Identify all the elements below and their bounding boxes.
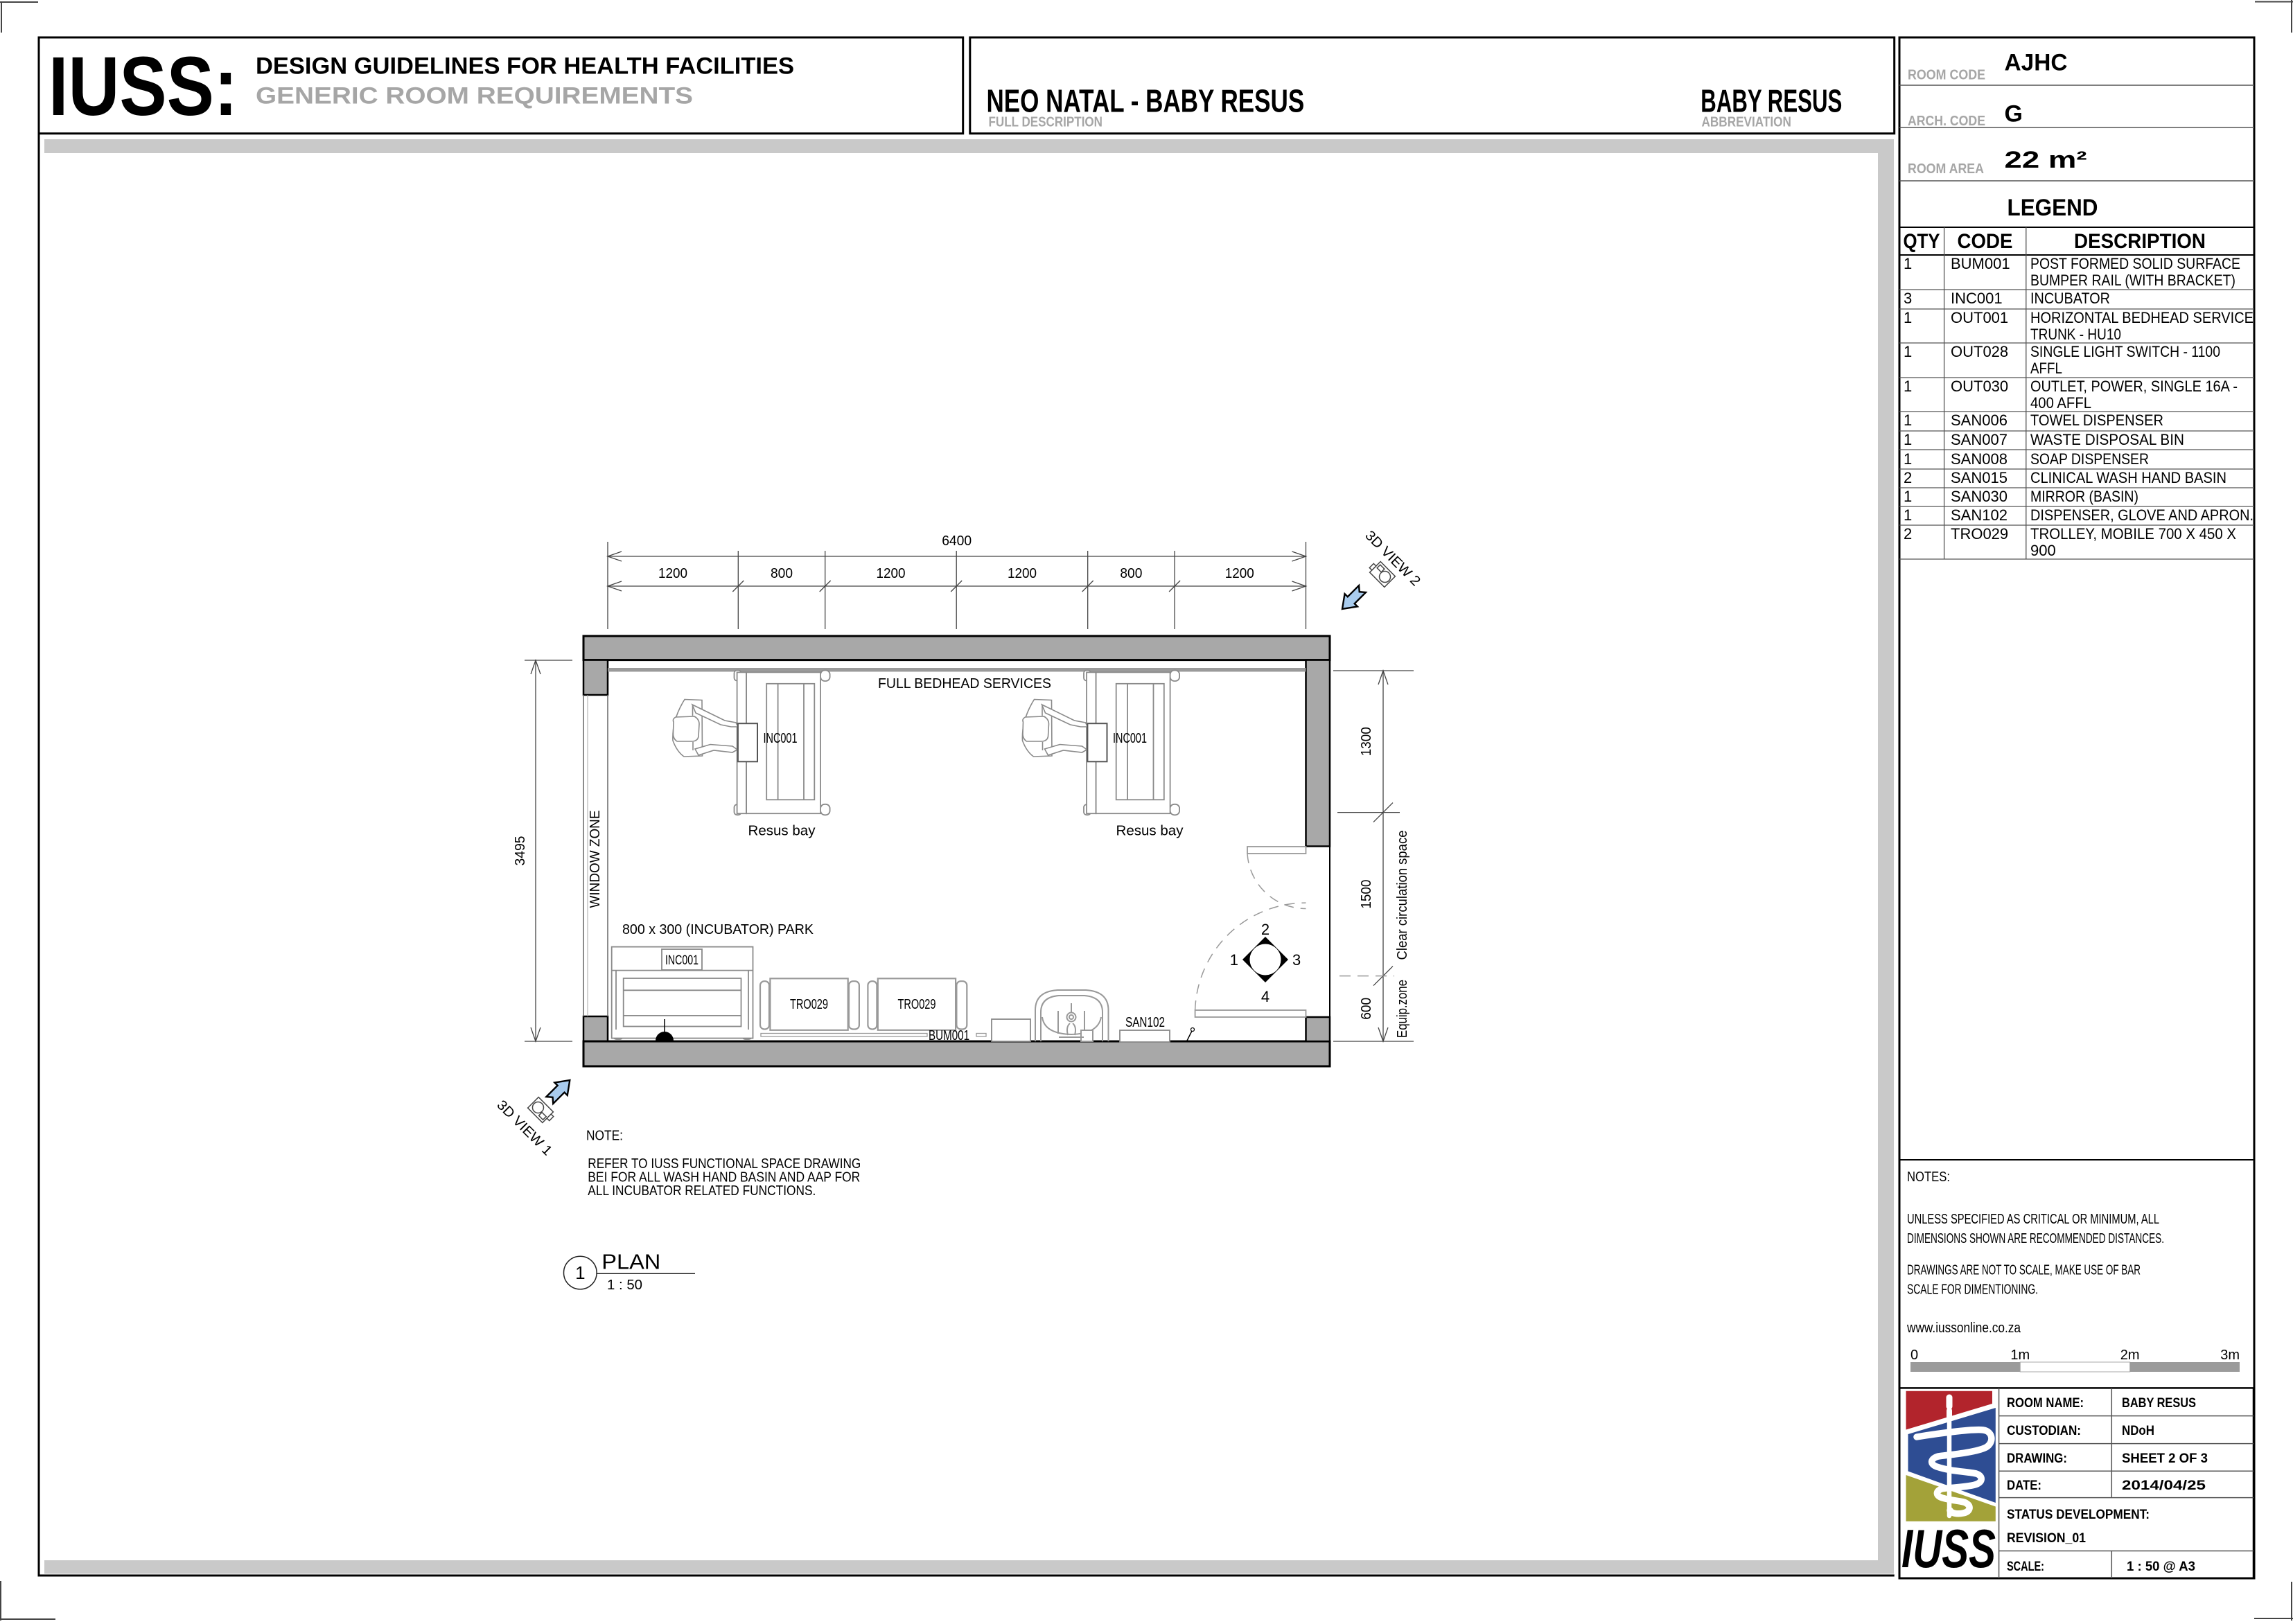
svg-text:1200: 1200	[877, 566, 906, 581]
svg-text:800: 800	[771, 566, 793, 581]
svg-text:TRO029: TRO029	[790, 997, 828, 1012]
svg-text:2m: 2m	[2120, 1348, 2140, 1363]
svg-text:1 : 50: 1 : 50	[607, 1278, 642, 1293]
svg-text:SAN006: SAN006	[1951, 412, 2008, 429]
svg-text:800 x 300 (INCUBATOR) PARK: 800 x 300 (INCUBATOR) PARK	[622, 922, 814, 937]
svg-text:DISPENSER, GLOVE AND APRON.: DISPENSER, GLOVE AND APRON.	[2030, 506, 2254, 524]
svg-text:SCALE FOR DIMENTIONING.: SCALE FOR DIMENTIONING.	[1907, 1282, 2038, 1297]
svg-text:DRAWINGS ARE NOT TO SCALE, MAK: DRAWINGS ARE NOT TO SCALE, MAKE USE OF B…	[1907, 1263, 2141, 1278]
svg-text:1200: 1200	[1225, 566, 1254, 581]
svg-text:4: 4	[1261, 988, 1270, 1005]
svg-text:CLINICAL WASH HAND BASIN: CLINICAL WASH HAND BASIN	[2030, 469, 2226, 486]
svg-text:G: G	[2005, 101, 2023, 127]
svg-text:DESIGN GUIDELINES FOR HEALTH F: DESIGN GUIDELINES FOR HEALTH FACILITIES	[256, 53, 794, 80]
svg-text:OUT030: OUT030	[1951, 378, 2008, 395]
svg-text:REVISION_01: REVISION_01	[2007, 1531, 2086, 1546]
svg-text:NOTE:: NOTE:	[586, 1129, 623, 1144]
svg-text:600: 600	[1359, 998, 1374, 1020]
svg-text:LEGEND: LEGEND	[2008, 195, 2098, 221]
svg-text:1: 1	[1904, 450, 1912, 468]
svg-text:GENERIC ROOM REQUIREMENTS: GENERIC ROOM REQUIREMENTS	[256, 82, 693, 109]
svg-text:1200: 1200	[1008, 566, 1037, 581]
svg-text:SAN007: SAN007	[1951, 431, 2008, 448]
svg-text:BABY RESUS: BABY RESUS	[2122, 1396, 2196, 1411]
svg-text:DIMENSIONS SHOWN ARE RECOMMEND: DIMENSIONS SHOWN ARE RECOMMENDED DISTANC…	[1907, 1231, 2164, 1246]
svg-text:1300: 1300	[1359, 727, 1374, 756]
svg-text:BABY RESUS: BABY RESUS	[1701, 83, 1842, 119]
svg-text:800: 800	[1120, 566, 1142, 581]
svg-text:SAN102: SAN102	[1951, 506, 2008, 524]
svg-text:QTY: QTY	[1904, 230, 1940, 253]
svg-text:1 : 50 @ A3: 1 : 50 @ A3	[2127, 1560, 2195, 1574]
svg-text:3: 3	[1292, 951, 1301, 969]
svg-text:NEO NATAL - BABY RESUS: NEO NATAL - BABY RESUS	[987, 83, 1305, 119]
svg-text:INC001: INC001	[1951, 290, 2003, 307]
svg-text:Clear circulation space: Clear circulation space	[1395, 831, 1410, 960]
svg-text:OUT028: OUT028	[1951, 343, 2008, 360]
svg-text:2014/04/25: 2014/04/25	[2122, 1479, 2206, 1493]
svg-text:WINDOW ZONE: WINDOW ZONE	[588, 811, 603, 908]
svg-text:NOTES:: NOTES:	[1907, 1170, 1950, 1185]
svg-text:TRO029: TRO029	[1951, 525, 2008, 542]
svg-text:1: 1	[1904, 506, 1912, 524]
svg-text:SHEET 2 OF 3: SHEET 2 OF 3	[2122, 1451, 2208, 1466]
svg-text:TRUNK - HU10: TRUNK - HU10	[2030, 326, 2121, 343]
svg-text:IUSS:: IUSS:	[49, 39, 238, 133]
svg-text:1: 1	[1904, 309, 1912, 326]
svg-text:2: 2	[1904, 469, 1912, 486]
svg-text:AJHC: AJHC	[2005, 50, 2068, 76]
svg-text:ALL INCUBATOR RELATED FUNCTION: ALL INCUBATOR RELATED FUNCTIONS.	[588, 1183, 816, 1199]
svg-text:1: 1	[575, 1262, 585, 1283]
svg-text:FULL DESCRIPTION: FULL DESCRIPTION	[989, 114, 1103, 130]
svg-text:POST FORMED SOLID SURFACE: POST FORMED SOLID SURFACE	[2030, 255, 2240, 272]
svg-text:Resus bay: Resus bay	[748, 824, 816, 839]
svg-text:UNLESS SPECIFIED AS CRITICAL O: UNLESS SPECIFIED AS CRITICAL OR MINIMUM,…	[1907, 1212, 2159, 1227]
svg-text:SAN008: SAN008	[1951, 450, 2008, 468]
svg-text:STATUS DEVELOPMENT:: STATUS DEVELOPMENT:	[2007, 1508, 2150, 1522]
svg-text:BUMPER RAIL (WITH BRACKET): BUMPER RAIL (WITH BRACKET)	[2030, 272, 2235, 289]
svg-text:WASTE DISPOSAL BIN: WASTE DISPOSAL BIN	[2030, 431, 2184, 448]
svg-text:6400: 6400	[942, 533, 972, 549]
svg-text:22 m²: 22 m²	[2005, 147, 2087, 173]
svg-text:SAN015: SAN015	[1951, 469, 2008, 486]
svg-text:TRO029: TRO029	[898, 997, 936, 1012]
svg-text:3495: 3495	[513, 836, 528, 866]
svg-text:INCUBATOR: INCUBATOR	[2030, 290, 2110, 307]
svg-text:OUT001: OUT001	[1951, 309, 2008, 326]
svg-text:ROOM AREA: ROOM AREA	[1908, 161, 1984, 177]
svg-text:ARCH. CODE: ARCH. CODE	[1908, 114, 1985, 129]
svg-text:INC001: INC001	[764, 731, 798, 746]
svg-text:1: 1	[1904, 488, 1912, 505]
svg-text:ROOM NAME:: ROOM NAME:	[2007, 1396, 2084, 1411]
svg-text:www.iussonline.co.za: www.iussonline.co.za	[1906, 1321, 2021, 1336]
svg-text:SOAP DISPENSER: SOAP DISPENSER	[2030, 450, 2149, 468]
svg-text:1200: 1200	[658, 566, 687, 581]
svg-text:TOWEL DISPENSER: TOWEL DISPENSER	[2030, 412, 2163, 429]
svg-text:BUM001: BUM001	[1951, 255, 2010, 272]
svg-text:HORIZONTAL BEDHEAD SERVICE: HORIZONTAL BEDHEAD SERVICE	[2030, 309, 2254, 326]
svg-text:PLAN: PLAN	[601, 1249, 660, 1273]
svg-text:ROOM CODE: ROOM CODE	[1908, 68, 1985, 83]
svg-text:FULL BEDHEAD SERVICES: FULL BEDHEAD SERVICES	[878, 676, 1051, 691]
svg-text:1: 1	[1904, 255, 1912, 272]
svg-text:SINGLE LIGHT SWITCH - 1100: SINGLE LIGHT SWITCH - 1100	[2030, 343, 2220, 360]
svg-text:1: 1	[1904, 378, 1912, 395]
svg-text:AFFL: AFFL	[2030, 360, 2062, 377]
svg-text:SAN102: SAN102	[1125, 1015, 1165, 1030]
svg-text:SAN030: SAN030	[1951, 488, 2008, 505]
svg-text:IUSS: IUSS	[1901, 1518, 1996, 1579]
svg-text:SCALE:: SCALE:	[2007, 1560, 2044, 1574]
svg-text:900: 900	[2030, 542, 2056, 559]
svg-text:OUTLET, POWER, SINGLE 16A -: OUTLET, POWER, SINGLE 16A -	[2030, 378, 2238, 395]
svg-text:INC001: INC001	[665, 953, 699, 968]
svg-text:ABBREVIATION: ABBREVIATION	[1702, 114, 1791, 130]
svg-text:DRAWING:: DRAWING:	[2007, 1451, 2067, 1466]
svg-text:BUM001: BUM001	[929, 1028, 969, 1043]
svg-text:3: 3	[1904, 290, 1912, 307]
svg-text:2: 2	[1904, 525, 1912, 542]
svg-text:Resus bay: Resus bay	[1116, 824, 1184, 839]
svg-text:1m: 1m	[2010, 1348, 2030, 1363]
svg-text:MIRROR (BASIN): MIRROR (BASIN)	[2030, 488, 2138, 505]
svg-text:1: 1	[1904, 343, 1912, 360]
svg-text:CUSTODIAN:: CUSTODIAN:	[2007, 1424, 2081, 1438]
svg-text:Equip.zone: Equip.zone	[1395, 980, 1410, 1038]
svg-text:1: 1	[1904, 431, 1912, 448]
svg-text:1: 1	[1230, 951, 1238, 969]
svg-text:400 AFFL: 400 AFFL	[2030, 394, 2091, 412]
svg-text:CODE: CODE	[1958, 230, 2013, 253]
svg-text:1: 1	[1904, 412, 1912, 429]
svg-text:2: 2	[1261, 921, 1270, 938]
svg-text:TROLLEY, MOBILE 700 X 450 X: TROLLEY, MOBILE 700 X 450 X	[2030, 525, 2236, 542]
svg-text:NDoH: NDoH	[2122, 1424, 2154, 1438]
svg-text:DATE:: DATE:	[2007, 1479, 2041, 1493]
svg-text:0: 0	[1910, 1348, 1918, 1363]
svg-text:DESCRIPTION: DESCRIPTION	[2074, 230, 2206, 253]
svg-text:1500: 1500	[1359, 880, 1374, 909]
svg-text:3m: 3m	[2220, 1348, 2240, 1363]
